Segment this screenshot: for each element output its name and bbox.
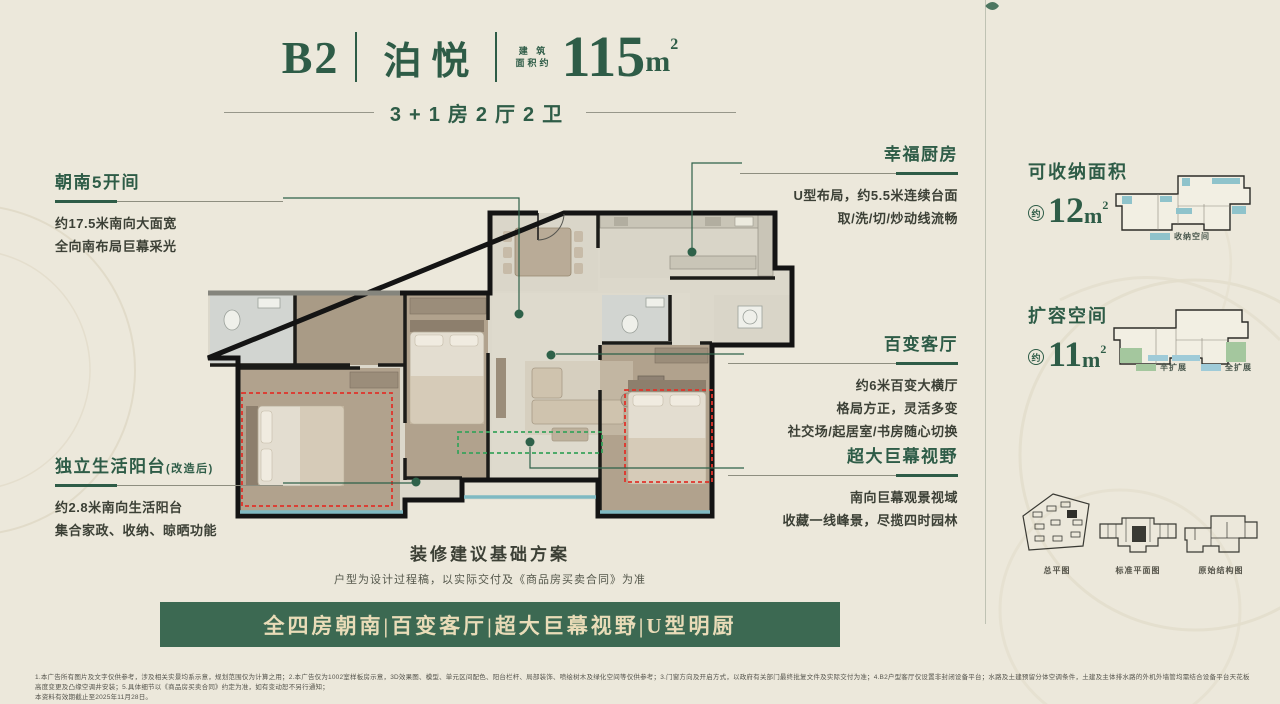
- title-divider: [495, 32, 497, 82]
- expand-title: 扩容空间: [1028, 302, 1108, 328]
- callout-body: 南向巨幕观景视域 收藏一线峰景，尽揽四时园林: [728, 487, 958, 533]
- subtitle-rule-right: [586, 112, 736, 113]
- legend-item: 半扩展: [1136, 362, 1187, 373]
- callout-title: 百变客厅: [728, 330, 958, 355]
- area-label: 建 筑 面积约: [515, 47, 551, 68]
- highlighted-unit: [1132, 526, 1146, 542]
- banner-text: 全四房朝南|百变客厅|超大巨幕视野|U型明厨: [263, 610, 736, 640]
- callout-title: 朝南5开间: [55, 168, 283, 193]
- callout-rule: [740, 172, 958, 175]
- page-title: B2 泊悦 建 筑 面积约 115 m2: [130, 28, 830, 86]
- area-value: 115: [561, 28, 645, 86]
- unit-code: B2: [282, 31, 340, 84]
- callout-view: 超大巨幕视野 南向巨幕观景视域 收藏一线峰景，尽揽四时园林: [728, 442, 958, 533]
- callout-body: 约17.5米南向大面宽 全向南布局巨幕采光: [55, 213, 283, 259]
- callout-rule: [728, 474, 958, 477]
- approx-badge: 约: [1028, 205, 1044, 221]
- layout-subtitle: 3+1房2厅2卫: [390, 98, 570, 127]
- half-expand-swatch: [1136, 364, 1156, 371]
- approx-badge: 约: [1028, 349, 1044, 365]
- bed-icon: [628, 380, 706, 484]
- note-title: 装修建议基础方案: [270, 540, 710, 565]
- storage-thumbnail-plan: [1112, 164, 1254, 236]
- legal-fine-print: 1.本广告所有图片及文字仅供参考，涉及相关实景均系示意，规划范围仅为计算之用；2…: [35, 673, 1250, 703]
- storage-value: 约 12 m2: [1028, 192, 1108, 228]
- storage-swatch: [1150, 233, 1170, 240]
- callout-kitchen: 幸福厨房 U型布局，约5.5米连续台面 取/洗/切/炒动线流畅: [740, 140, 958, 231]
- panel-divider: [985, 0, 986, 624]
- callout-rule: [55, 484, 283, 487]
- header: B2 泊悦 建 筑 面积约 115 m2 3+1房2厅2卫: [130, 28, 830, 127]
- poster-page: B2 泊悦 建 筑 面积约 115 m2 3+1房2厅2卫: [0, 0, 1280, 704]
- callout-body: U型布局，约5.5米连续台面 取/洗/切/炒动线流畅: [740, 185, 958, 231]
- full-expand-swatch: [1201, 364, 1221, 371]
- expand-value: 约 11 m2: [1028, 336, 1106, 372]
- callout-balcony: 独立生活阳台(改造后) 约2.8米南向生活阳台 集合家政、收纳、晾晒功能: [55, 452, 283, 543]
- selling-points-banner: 全四房朝南|百变客厅|超大巨幕视野|U型明厨: [160, 602, 840, 647]
- note-subtitle: 户型为设计过程稿，以实际交付及《商品房买卖合同》为准: [270, 571, 710, 587]
- structure-plan-diagram: 原始结构图: [1183, 510, 1259, 576]
- callout-body: 约6米百变大横厅 格局方正，灵活多变 社交场/起居室/书房随心切换: [728, 375, 958, 443]
- callout-rule: [55, 200, 283, 203]
- expand-legend: 半扩展 全扩展: [1136, 362, 1252, 373]
- legend-item: 全扩展: [1201, 362, 1252, 373]
- decoration-note: 装修建议基础方案 户型为设计过程稿，以实际交付及《商品房买卖合同》为准: [270, 540, 710, 587]
- hallway-floor: [295, 295, 405, 365]
- fine-print-line1: 1.本广告所有图片及文字仅供参考，涉及相关实景均系示意，规划范围仅为计算之用；2…: [35, 673, 1250, 693]
- callout-body: 约2.8米南向生活阳台 集合家政、收纳、晾晒功能: [55, 497, 283, 543]
- floor-plate-diagram: 标准平面图: [1098, 512, 1178, 576]
- callout-title: 超大巨幕视野: [728, 442, 958, 467]
- expand-thumbnail-plan: [1108, 298, 1254, 370]
- callout-south: 朝南5开间 约17.5米南向大面宽 全向南布局巨幕采光: [55, 168, 283, 259]
- area-unit: m2: [645, 36, 678, 79]
- floor-plan: [200, 128, 800, 535]
- unit-name: 泊悦: [373, 30, 479, 85]
- subtitle-row: 3+1房2厅2卫: [130, 98, 830, 127]
- sofa-icon: [525, 361, 633, 441]
- subtitle-rule-left: [224, 112, 374, 113]
- bed-icon: [410, 320, 484, 424]
- area-superscript: 2: [670, 36, 678, 53]
- callout-title: 独立生活阳台(改造后): [55, 452, 283, 477]
- fine-print-line2: 本资料有效期截止至2025年11月28日。: [35, 693, 1250, 703]
- callout-rule: [728, 362, 958, 365]
- callout-living: 百变客厅 约6米百变大横厅 格局方正，灵活多变 社交场/起居室/书房随心切换: [728, 330, 958, 443]
- callout-title: 幸福厨房: [740, 140, 958, 165]
- title-divider: [355, 32, 357, 82]
- legend-item: 收纳空间: [1150, 231, 1210, 242]
- site-plan-diagram: 总平图: [1020, 492, 1094, 576]
- storage-legend: 收纳空间: [1150, 231, 1210, 242]
- callout-title-suffix: (改造后): [166, 463, 214, 475]
- highlighted-building: [1067, 510, 1077, 518]
